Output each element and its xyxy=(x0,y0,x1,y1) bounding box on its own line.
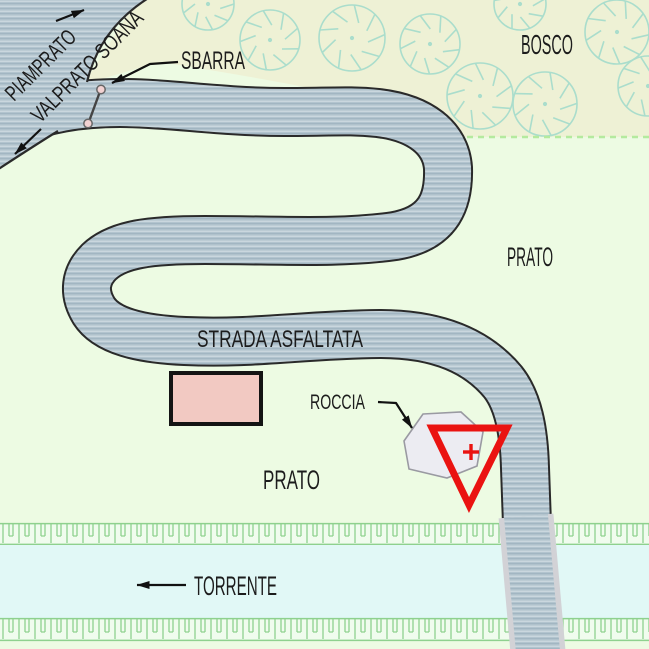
map-canvas: PIAMPRATO VALPRATO SOANA SBARRA BOSCO PR… xyxy=(0,0,649,649)
label-sbarra: SBARRA xyxy=(181,47,245,75)
label-strada-asfaltata: STRADA ASFALTATA xyxy=(197,326,363,353)
label-torrente: TORRENTE xyxy=(194,571,277,601)
label-prato-lower: PRATO xyxy=(263,465,320,495)
building xyxy=(171,373,261,424)
label-roccia: ROCCIA xyxy=(310,391,365,414)
label-bosco: BOSCO xyxy=(521,29,573,60)
bridge xyxy=(526,516,538,649)
label-prato-upper: PRATO xyxy=(507,242,553,272)
